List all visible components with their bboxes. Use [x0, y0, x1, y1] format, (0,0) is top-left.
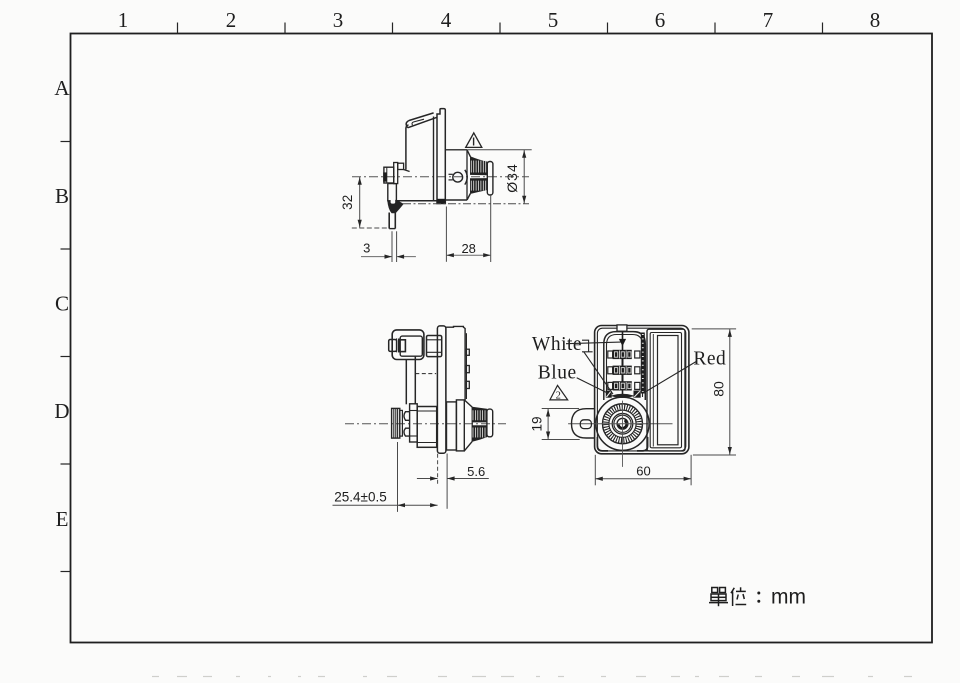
svg-text:5: 5 [548, 8, 559, 32]
svg-text:Red: Red [693, 349, 726, 370]
svg-text:5.6: 5.6 [467, 464, 485, 479]
svg-text:C: C [55, 292, 69, 316]
svg-text:2: 2 [556, 391, 561, 402]
svg-text:White: White [532, 334, 582, 355]
svg-text:Ø34: Ø34 [504, 163, 520, 192]
svg-text:A: A [54, 76, 70, 100]
svg-text:25.4±0.5: 25.4±0.5 [334, 490, 386, 505]
svg-text:D: D [54, 399, 69, 423]
svg-text:28: 28 [461, 241, 475, 256]
svg-text:3: 3 [333, 8, 344, 32]
svg-text:2: 2 [226, 8, 237, 32]
svg-text:1: 1 [118, 8, 129, 32]
svg-text:8: 8 [870, 8, 881, 32]
svg-text:7: 7 [763, 8, 774, 32]
svg-text:4: 4 [441, 8, 452, 32]
svg-text:60: 60 [636, 464, 650, 479]
svg-text:B: B [55, 184, 69, 208]
svg-text:19: 19 [530, 416, 545, 431]
svg-text:32: 32 [340, 195, 355, 210]
svg-text:mm: mm [771, 586, 806, 609]
svg-text:3: 3 [363, 241, 370, 256]
svg-text:E: E [56, 507, 69, 531]
svg-text:Blue: Blue [538, 363, 577, 384]
svg-text:6: 6 [655, 8, 666, 32]
svg-text:80: 80 [711, 381, 727, 397]
